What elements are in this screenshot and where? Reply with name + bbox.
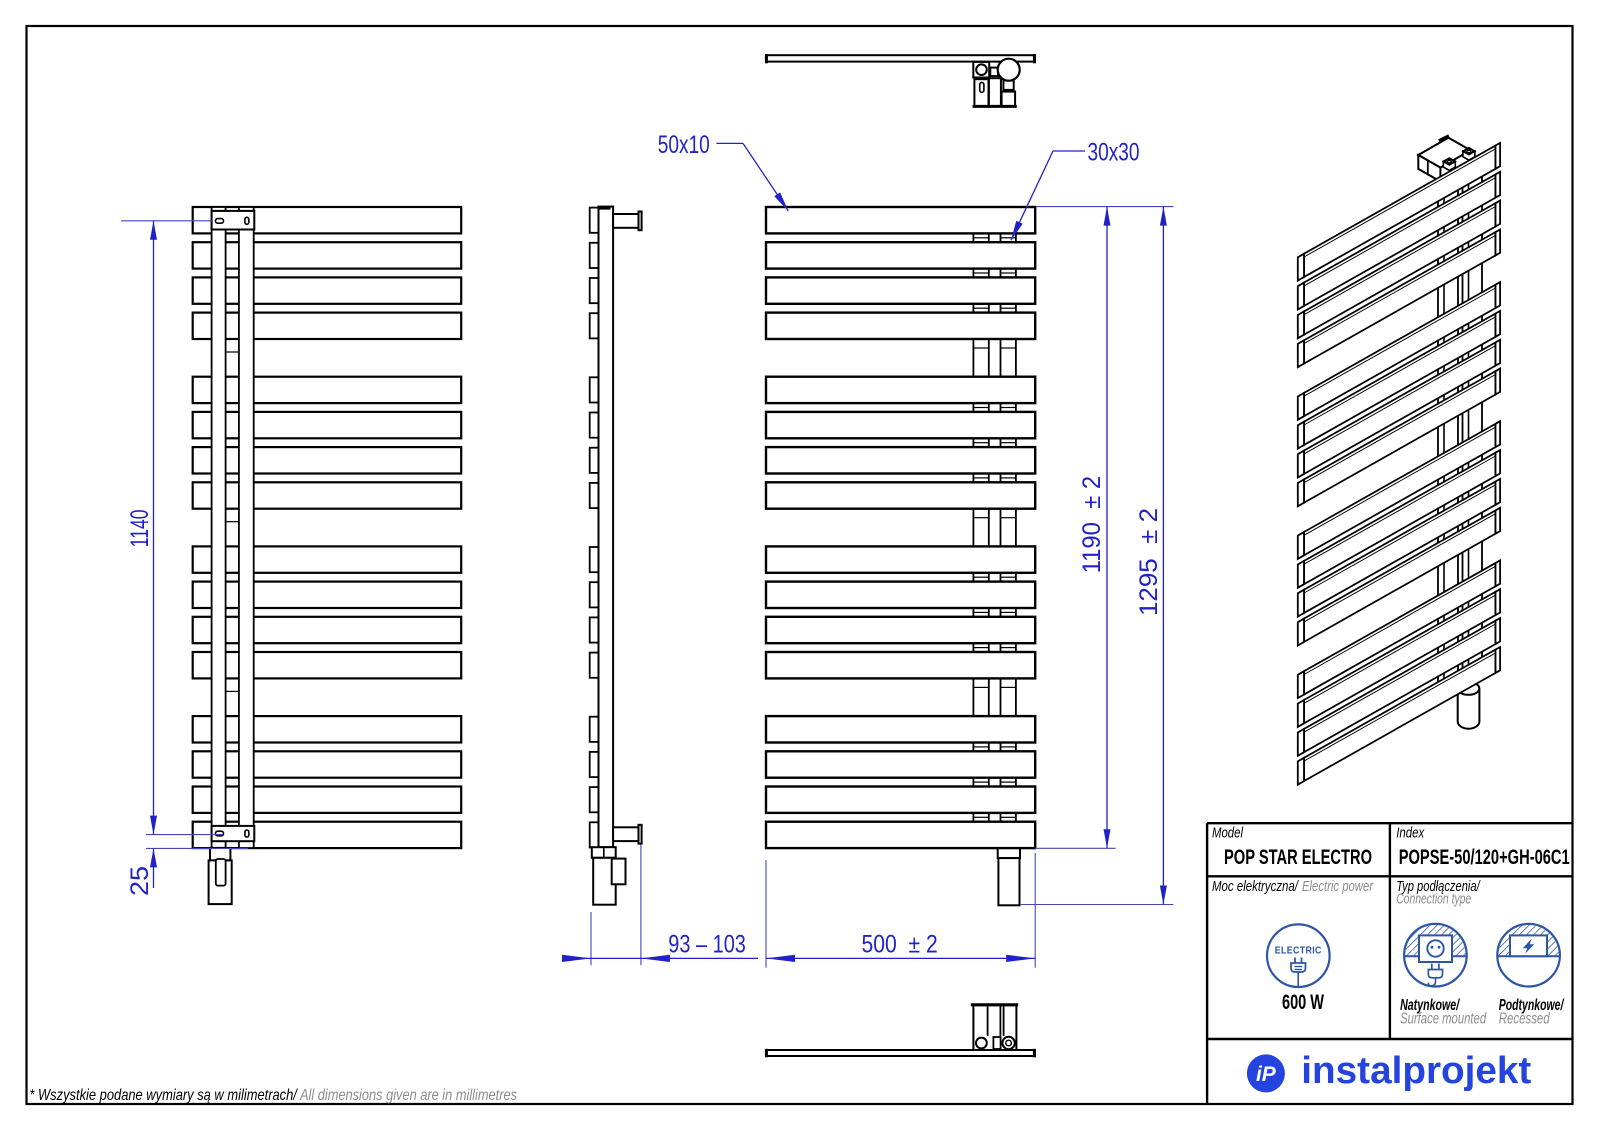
svg-text:Surface mounted: Surface mounted bbox=[1400, 1011, 1487, 1028]
svg-text:93 – 103: 93 – 103 bbox=[668, 931, 746, 959]
svg-text:Recessed: Recessed bbox=[1499, 1011, 1551, 1028]
svg-text:POP STAR ELECTRO: POP STAR ELECTRO bbox=[1224, 846, 1372, 869]
svg-text:500 ± 2: 500 ± 2 bbox=[862, 931, 938, 959]
svg-text:instalprojekt: instalprojekt bbox=[1301, 1050, 1531, 1092]
svg-text:POPSE-50/120+GH-06C1: POPSE-50/120+GH-06C1 bbox=[1399, 846, 1570, 869]
svg-text:Moc elektryczna/: Moc elektryczna/ bbox=[1212, 878, 1299, 895]
svg-text:iP: iP bbox=[1256, 1063, 1277, 1086]
svg-text:25: 25 bbox=[126, 866, 154, 896]
svg-text:600 W: 600 W bbox=[1282, 991, 1324, 1014]
svg-text:All dimensions given are in mi: All dimensions given are in millimetres bbox=[299, 1087, 517, 1104]
svg-text:Index: Index bbox=[1396, 826, 1425, 842]
svg-text:ELECTRIC: ELECTRIC bbox=[1275, 946, 1322, 957]
svg-text:Model: Model bbox=[1212, 826, 1244, 842]
svg-text:1295 ± 2: 1295 ± 2 bbox=[1135, 508, 1163, 616]
svg-text:Electric power: Electric power bbox=[1302, 878, 1374, 895]
svg-text:Connection type: Connection type bbox=[1396, 891, 1471, 908]
svg-text:1140: 1140 bbox=[126, 510, 154, 548]
svg-text:50x10: 50x10 bbox=[658, 131, 710, 159]
svg-text:30x30: 30x30 bbox=[1088, 139, 1140, 167]
svg-text:1190 ± 2: 1190 ± 2 bbox=[1078, 476, 1106, 574]
svg-text:* Wszystkie podane wymiary są: * Wszystkie podane wymiary są w milimetr… bbox=[29, 1087, 298, 1104]
